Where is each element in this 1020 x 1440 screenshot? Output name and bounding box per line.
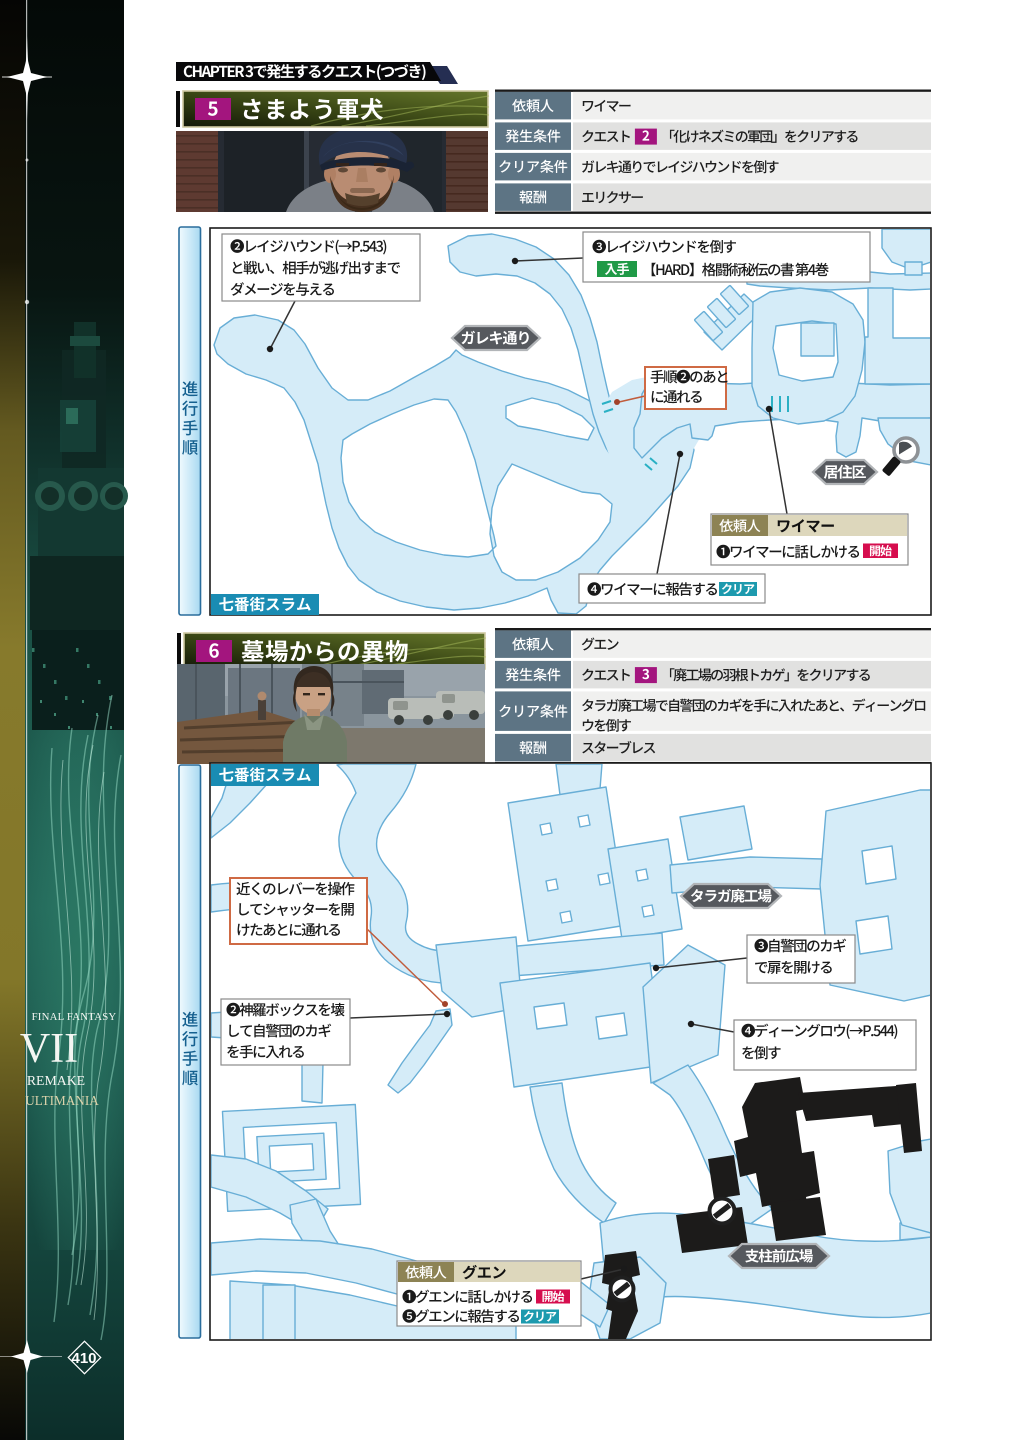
svg-text:ULTIMANIA: ULTIMANIA <box>25 1093 99 1108</box>
svg-text:REMAKE: REMAKE <box>27 1073 85 1088</box>
svg-text:VII: VII <box>20 1026 78 1072</box>
svg-text:FINAL FANTASY: FINAL FANTASY <box>32 1011 117 1023</box>
svg-text:410: 410 <box>71 1350 96 1367</box>
